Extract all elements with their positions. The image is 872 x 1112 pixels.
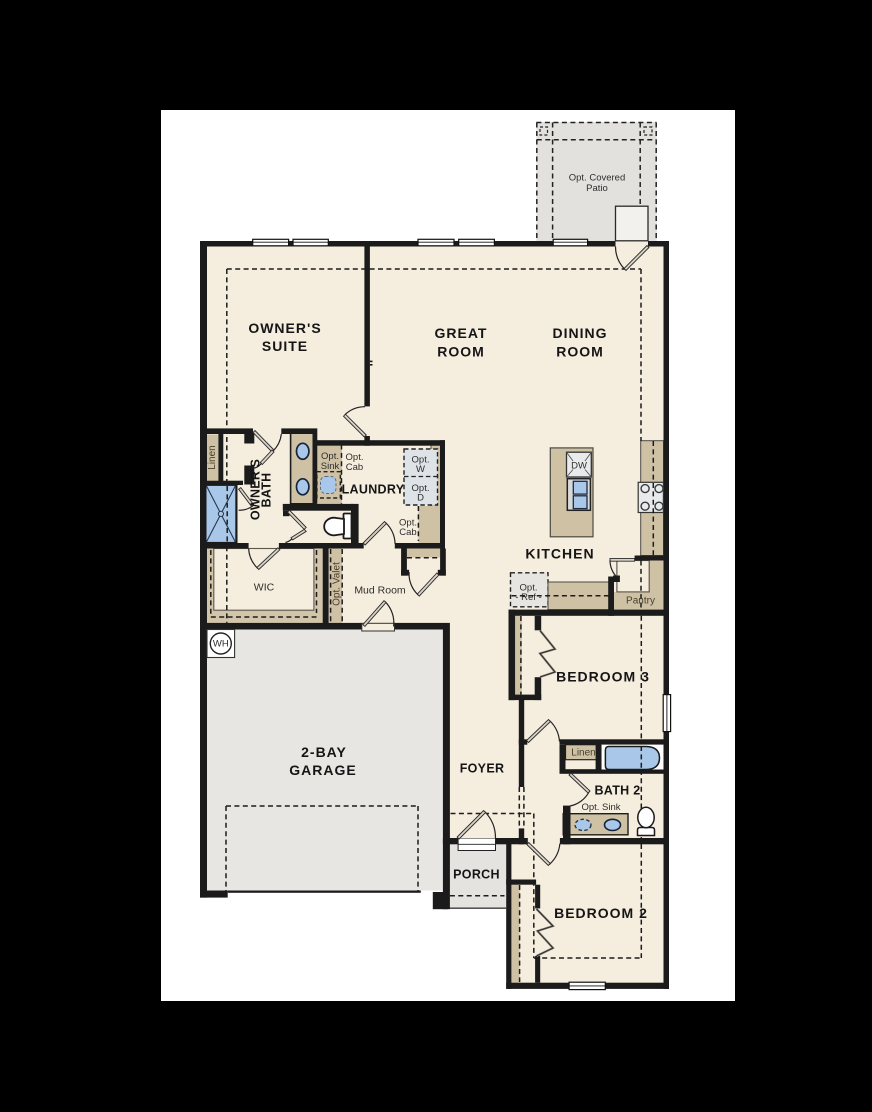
svg-text:KITCHEN: KITCHEN: [525, 546, 594, 562]
svg-text:SUITE: SUITE: [262, 338, 308, 354]
svg-text:BEDROOM 3: BEDROOM 3: [556, 669, 650, 685]
svg-text:BATH 2: BATH 2: [594, 784, 640, 798]
svg-text:ROOM: ROOM: [556, 344, 604, 360]
svg-text:Sink: Sink: [321, 461, 340, 472]
svg-text:GREAT: GREAT: [435, 325, 488, 341]
svg-text:Pantry: Pantry: [626, 596, 655, 607]
svg-text:LAUNDRY: LAUNDRY: [342, 483, 405, 497]
svg-text:BATH: BATH: [260, 473, 274, 508]
svg-text:W: W: [416, 464, 425, 475]
svg-text:- Ref -: - Ref -: [515, 592, 541, 603]
svg-text:DINING: DINING: [553, 325, 608, 341]
svg-text:Mud Room: Mud Room: [354, 585, 406, 597]
svg-text:Patio: Patio: [586, 183, 608, 194]
svg-text:Cab: Cab: [399, 527, 416, 538]
svg-text:Linen: Linen: [571, 748, 595, 759]
svg-text:2-BAY: 2-BAY: [301, 744, 347, 760]
svg-text:PORCH: PORCH: [453, 868, 500, 882]
svg-text:Linen: Linen: [207, 445, 218, 469]
svg-text:OWNER'S: OWNER'S: [248, 320, 321, 336]
svg-text:WIC: WIC: [254, 582, 275, 594]
svg-text:BEDROOM 2: BEDROOM 2: [554, 905, 648, 921]
svg-text:DW: DW: [571, 461, 587, 472]
svg-text:Cab: Cab: [346, 462, 363, 473]
svg-text:D: D: [417, 493, 424, 504]
svg-text:FOYER: FOYER: [460, 762, 505, 776]
svg-text:Opt. Covered: Opt. Covered: [569, 173, 626, 184]
svg-text:ROOM: ROOM: [437, 344, 485, 360]
svg-text:GARAGE: GARAGE: [289, 762, 356, 778]
svg-text:Opt. Sink: Opt. Sink: [581, 802, 620, 813]
svg-text:Opt. Valet: Opt. Valet: [332, 562, 343, 606]
svg-text:WH: WH: [213, 639, 229, 650]
